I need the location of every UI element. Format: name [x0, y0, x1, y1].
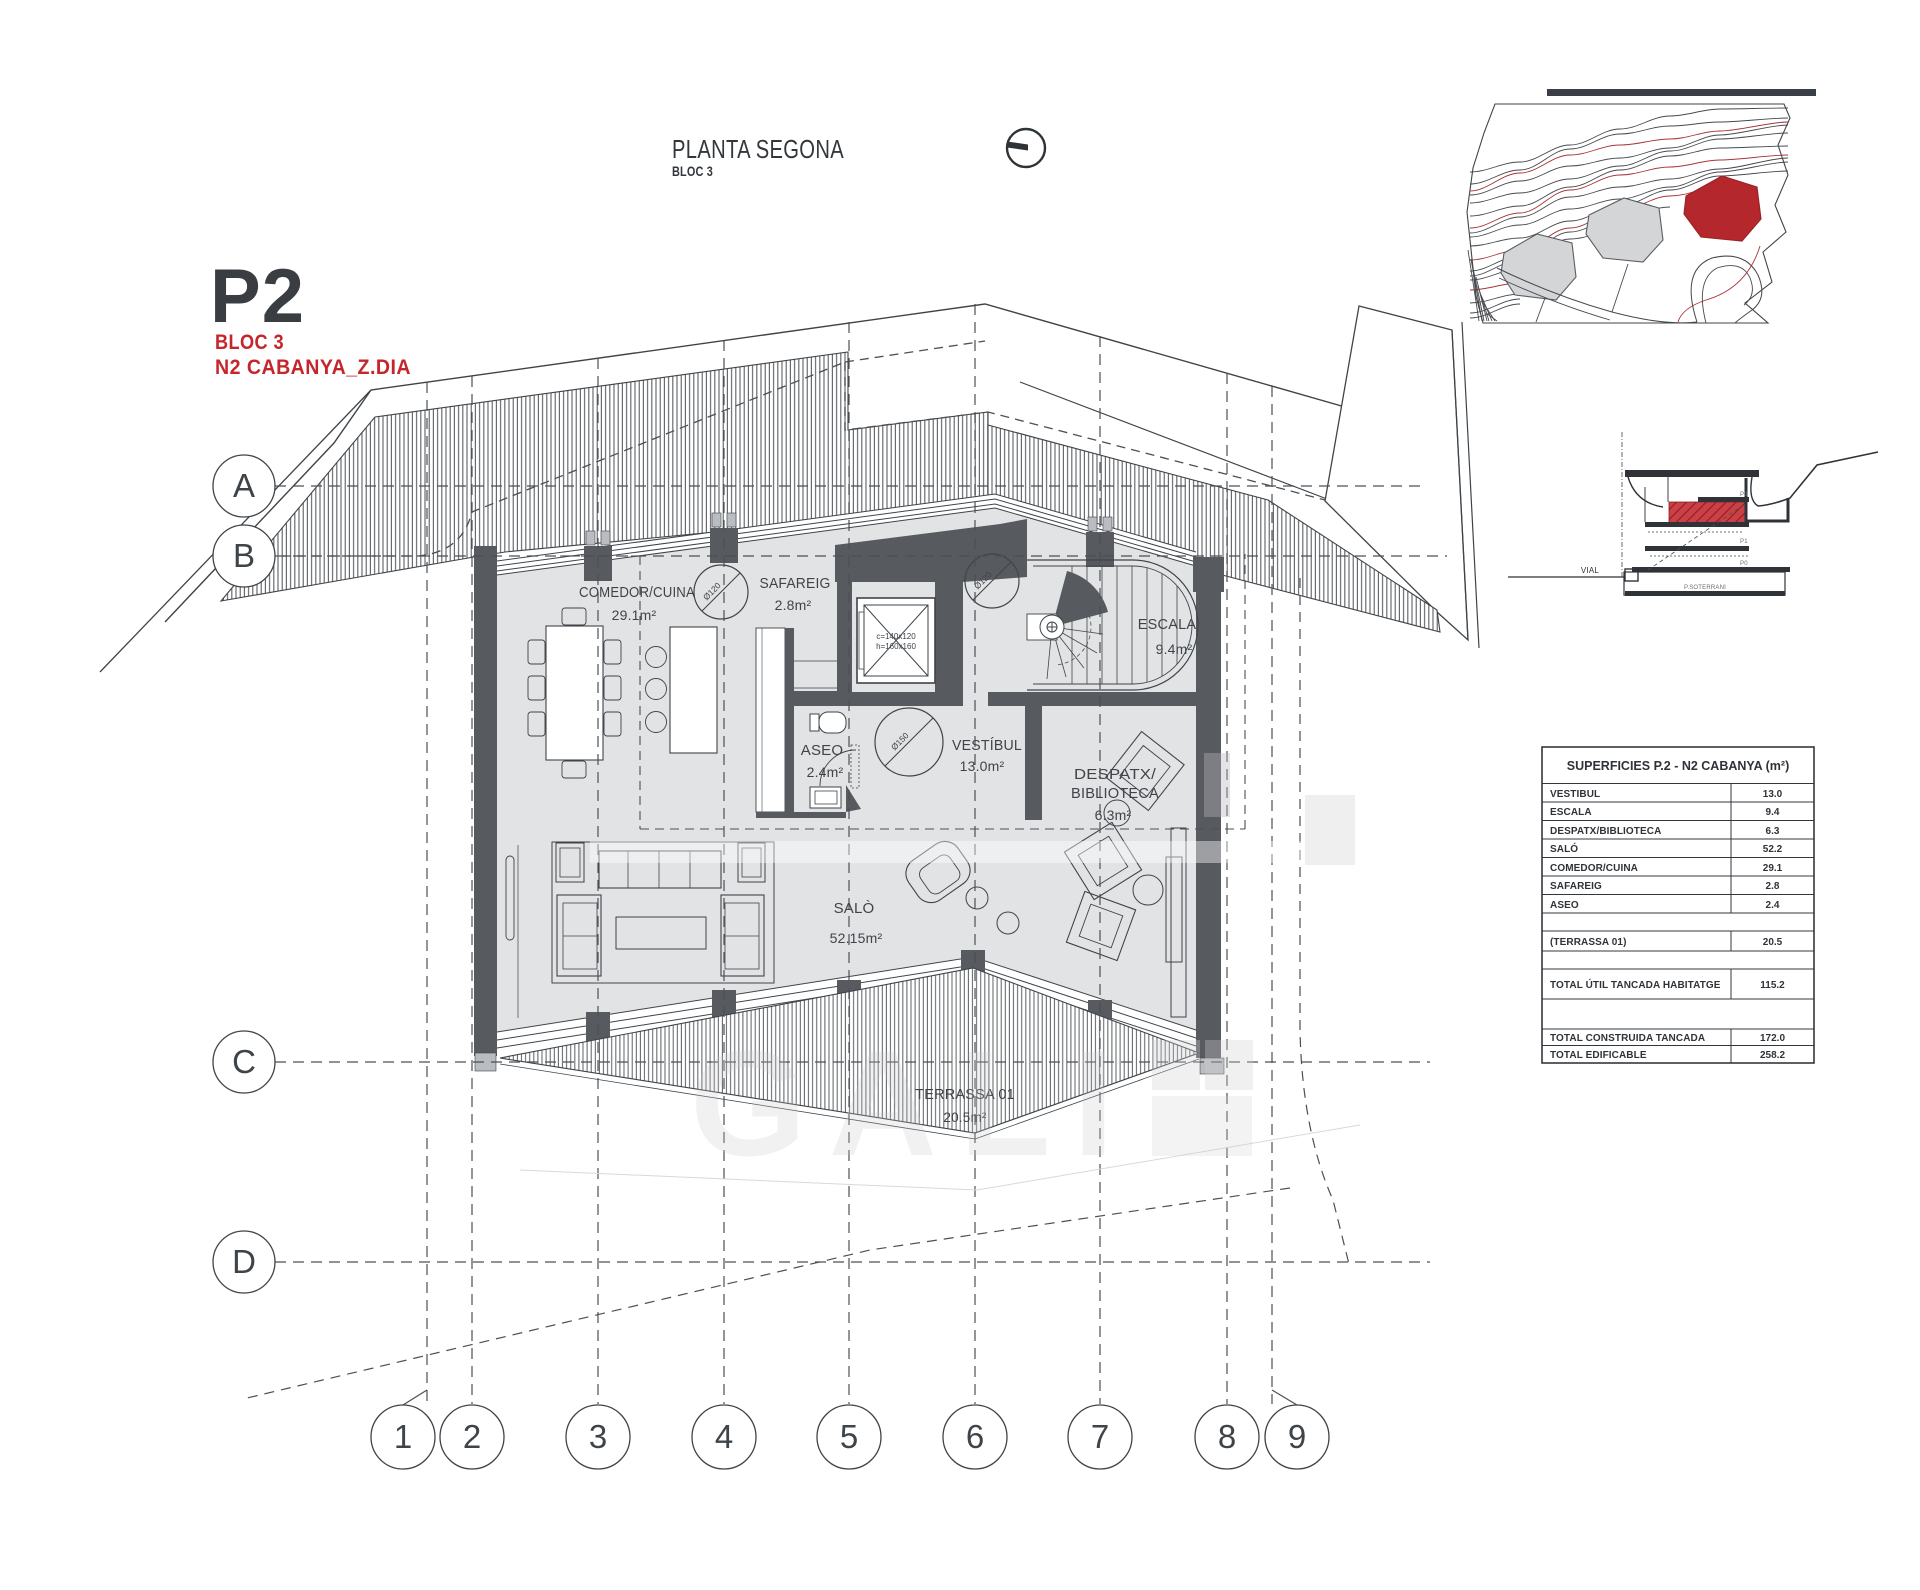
svg-text:115.2: 115.2	[1760, 980, 1785, 991]
svg-text:P0: P0	[1740, 561, 1748, 567]
svg-text:TOTAL EDIFICABLE: TOTAL EDIFICABLE	[1550, 1050, 1647, 1061]
svg-text:2.4m²: 2.4m²	[807, 764, 844, 780]
svg-text:DESPATX/: DESPATX/	[1074, 766, 1157, 783]
svg-text:N2 CABANYA_Z.DIA: N2 CABANYA_Z.DIA	[215, 356, 411, 379]
svg-text:VESTÍBUL: VESTÍBUL	[952, 737, 1022, 754]
svg-text:PLANTA SEGONA: PLANTA SEGONA	[672, 136, 844, 164]
svg-text:VESTIBUL: VESTIBUL	[1550, 789, 1600, 800]
svg-text:20.5: 20.5	[1763, 937, 1783, 948]
svg-text:8: 8	[1218, 1418, 1236, 1455]
svg-text:C: C	[232, 1043, 256, 1080]
svg-text:1: 1	[394, 1418, 412, 1455]
svg-text:P.SOTERRANI: P.SOTERRANI	[1684, 585, 1726, 591]
svg-text:ESCALA: ESCALA	[1138, 617, 1197, 633]
svg-text:A: A	[233, 467, 255, 504]
svg-text:258.2: 258.2	[1760, 1050, 1785, 1061]
svg-text:GALI: GALI	[690, 1019, 1136, 1187]
svg-text:ASEO: ASEO	[1550, 900, 1579, 911]
svg-text:h=160x160: h=160x160	[876, 642, 916, 651]
svg-text:BLOC 3: BLOC 3	[672, 164, 713, 179]
svg-text:3: 3	[589, 1418, 607, 1455]
svg-text:9.4: 9.4	[1766, 807, 1780, 818]
svg-text:2.8: 2.8	[1766, 881, 1780, 892]
svg-text:TOTAL CONSTRUIDA TANCADA: TOTAL CONSTRUIDA TANCADA	[1550, 1033, 1705, 1044]
svg-text:SALÓ: SALÓ	[1550, 842, 1578, 855]
svg-text:13.0m²: 13.0m²	[960, 758, 1005, 774]
svg-text:SALÒ: SALÒ	[834, 900, 875, 917]
svg-text:6.3: 6.3	[1766, 826, 1780, 837]
svg-text:2.8m²: 2.8m²	[775, 597, 812, 613]
svg-text:SAFAREIG: SAFAREIG	[760, 575, 831, 592]
svg-text:9.4m²: 9.4m²	[1156, 641, 1193, 657]
svg-text:BLOC 3: BLOC 3	[215, 331, 284, 354]
svg-text:VIAL: VIAL	[1581, 566, 1599, 575]
svg-text:2: 2	[463, 1418, 481, 1455]
svg-text:TOTAL ÚTIL TANCADA HABITATGE: TOTAL ÚTIL TANCADA HABITATGE	[1550, 978, 1721, 991]
svg-text:P3: P3	[1740, 492, 1748, 498]
svg-text:13.0: 13.0	[1763, 789, 1783, 800]
svg-text:D: D	[232, 1243, 256, 1280]
svg-text:5: 5	[840, 1418, 858, 1455]
svg-text:52.15m²: 52.15m²	[830, 930, 883, 946]
svg-text:COMEDOR/CUINA: COMEDOR/CUINA	[1550, 863, 1638, 874]
svg-text:52.2: 52.2	[1763, 844, 1783, 855]
svg-text:9: 9	[1288, 1418, 1306, 1455]
svg-text:B: B	[233, 537, 255, 574]
svg-text:SUPERFICIES P.2 - N2 CABANYA (: SUPERFICIES P.2 - N2 CABANYA (m²)	[1567, 759, 1790, 773]
svg-text:P1: P1	[1740, 539, 1748, 545]
svg-text:ASEO: ASEO	[801, 742, 843, 759]
svg-text:6: 6	[966, 1418, 984, 1455]
svg-text:P2: P2	[210, 254, 305, 339]
svg-text:6.3m²: 6.3m²	[1095, 807, 1132, 823]
svg-text:c=140x120: c=140x120	[876, 632, 916, 641]
svg-text:7: 7	[1091, 1418, 1109, 1455]
svg-text:29.1m²: 29.1m²	[612, 607, 657, 623]
svg-text:(TERRASSA 01): (TERRASSA 01)	[1550, 937, 1627, 948]
svg-text:2.4: 2.4	[1766, 900, 1780, 911]
svg-text:29.1: 29.1	[1763, 863, 1783, 874]
svg-text:172.0: 172.0	[1760, 1033, 1785, 1044]
svg-text:SAFAREIG: SAFAREIG	[1550, 881, 1602, 892]
svg-text:BIBLIOTECA: BIBLIOTECA	[1071, 785, 1159, 802]
svg-text:COMEDOR/CUINA: COMEDOR/CUINA	[579, 584, 695, 601]
svg-text:ESCALA: ESCALA	[1550, 807, 1592, 818]
svg-text:DESPATX/BIBLIOTECA: DESPATX/BIBLIOTECA	[1550, 826, 1661, 837]
svg-text:4: 4	[715, 1418, 733, 1455]
